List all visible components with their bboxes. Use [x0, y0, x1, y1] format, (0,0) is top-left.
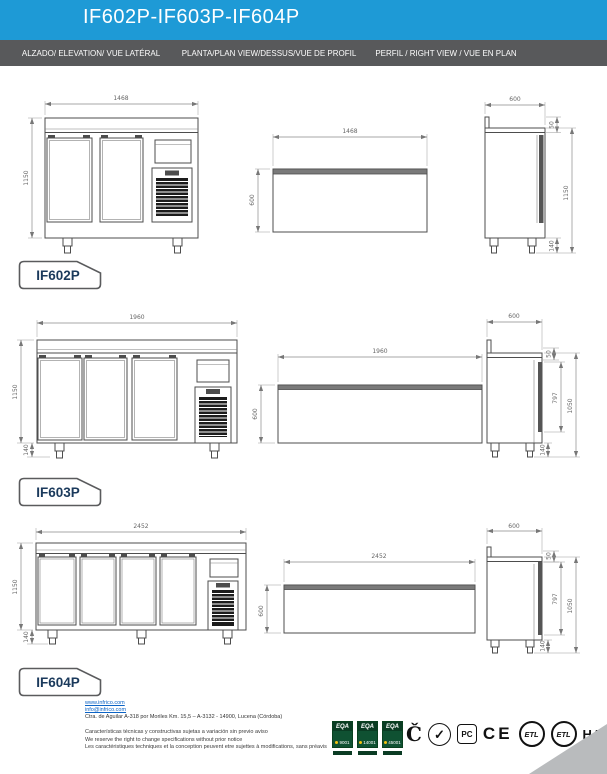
pct-mark-icon: PC	[457, 724, 477, 744]
dimension-splash: 50	[543, 551, 559, 562]
svg-text:1050: 1050	[567, 398, 574, 413]
datasheet-page: IF602P-IF603P-IF604P ALZADO/ ELEVATION/ …	[0, 0, 607, 774]
email-link[interactable]: info@infrico.com	[85, 707, 385, 714]
model-label-if602p: IF602P	[18, 260, 102, 290]
cabinet-body	[487, 340, 543, 443]
company-address: Ctra. de Aguilar A-318 por Moriles Km. 1…	[85, 714, 385, 721]
svg-text:1150: 1150	[563, 185, 570, 200]
door	[160, 554, 196, 625]
svg-text:IF604P: IF604P	[36, 675, 80, 690]
dimension-depth: 600	[485, 96, 545, 125]
column-label-side: PERFIL / RIGHT VIEW / VUE EN PLAN	[376, 40, 516, 66]
model-label-if604p: IF604P	[18, 667, 102, 697]
compressor-logo	[165, 171, 179, 176]
dimension-width: 1468	[273, 128, 427, 166]
svg-text:140: 140	[549, 240, 556, 252]
legs	[491, 443, 534, 457]
svg-text:1150: 1150	[12, 384, 19, 399]
if602p-plan-view: 1468 600	[245, 115, 445, 240]
dimension-legs: 140	[540, 640, 553, 653]
door-edge	[539, 135, 544, 223]
door	[80, 554, 116, 625]
quality-mark-icon: Č	[406, 724, 422, 744]
cabinet-body	[485, 117, 545, 238]
ce-mark: CE	[483, 724, 513, 744]
svg-text:1960: 1960	[129, 314, 144, 321]
dimension-splash: 50	[546, 117, 561, 133]
svg-text:50: 50	[546, 350, 553, 358]
star-icon	[384, 741, 387, 744]
dimension-width: 1468	[45, 95, 198, 115]
backsplash	[485, 117, 489, 128]
compressor-compartment	[152, 140, 192, 222]
door	[47, 135, 92, 222]
dimension-legs: 140	[546, 238, 561, 253]
dimension-door: 797	[544, 562, 565, 635]
iso-45001-badge: EQA 45001	[382, 721, 403, 748]
svg-text:1150: 1150	[23, 170, 30, 185]
svg-text:797: 797	[552, 593, 559, 605]
dimension-legs: 140	[23, 630, 48, 644]
dimension-splash: 50	[543, 348, 559, 360]
column-label-elevation: ALZADO/ ELEVATION/ VUE LATÉRAL	[22, 40, 160, 66]
dimension-height: 1150	[12, 543, 33, 630]
iso-14001-badge: EQA 14001	[357, 721, 378, 748]
worktop-outline	[278, 385, 482, 443]
cabinet-body	[487, 547, 543, 640]
gost-check-icon: ✓	[428, 723, 451, 746]
page-title: IF602P-IF603P-IF604P	[83, 6, 300, 29]
dimension-width: 1960	[37, 314, 237, 337]
dimension-depth: 600	[487, 313, 542, 350]
legs	[63, 238, 182, 253]
door	[132, 355, 177, 440]
header-bar: IF602P-IF603P-IF604P	[0, 0, 607, 40]
svg-text:1468: 1468	[342, 128, 357, 135]
svg-text:IF603P: IF603P	[36, 485, 80, 500]
backsplash	[487, 340, 491, 353]
compressor-compartment	[195, 360, 231, 443]
svg-text:2452: 2452	[371, 553, 386, 560]
svg-text:140: 140	[540, 640, 547, 652]
dimension-depth: 600	[249, 169, 270, 232]
svg-text:IF602P: IF602P	[36, 268, 80, 283]
svg-text:600: 600	[258, 605, 265, 617]
dimension-depth: 600	[252, 385, 275, 443]
compressor-grille	[156, 178, 188, 216]
star-icon	[359, 741, 362, 744]
svg-text:1468: 1468	[113, 95, 128, 102]
svg-text:600: 600	[508, 523, 520, 530]
svg-text:50: 50	[546, 552, 553, 560]
svg-text:140: 140	[540, 444, 547, 456]
worktop-outline	[284, 585, 475, 633]
dimension-height: 1150	[12, 340, 34, 443]
compressor-logo	[216, 583, 230, 588]
door	[38, 554, 76, 625]
legs	[491, 640, 534, 653]
door	[100, 135, 143, 222]
model-label-if603p: IF603P	[18, 477, 102, 507]
page-corner-triangle	[529, 724, 607, 774]
backsplash	[487, 547, 491, 557]
compressor-grille	[199, 397, 227, 437]
dimension-depth: 600	[258, 585, 281, 633]
dimension-width: 1960	[278, 348, 482, 382]
column-label-plan: PLANTA/PLAN VIEW/DESSUS/VUE DE PROFIL	[183, 40, 355, 66]
door	[120, 554, 156, 625]
svg-text:600: 600	[508, 313, 520, 320]
door-edge	[538, 562, 543, 635]
iso-9001-badge: EQA 9001	[332, 721, 353, 748]
svg-text:600: 600	[252, 408, 259, 420]
if604p-side-view: 600 50 797 1050	[460, 520, 607, 715]
worktop-outline	[273, 169, 427, 232]
dimension-height: 1150	[23, 118, 42, 238]
svg-text:140: 140	[23, 631, 30, 643]
svg-text:140: 140	[23, 444, 30, 456]
if602p-front-elevation: 1468 1150	[20, 85, 230, 270]
if603p-plan-view: 1960 600	[245, 330, 495, 450]
dimension-width: 2452	[284, 553, 475, 582]
svg-text:50: 50	[549, 121, 556, 129]
svg-text:600: 600	[249, 194, 256, 206]
legs	[55, 443, 219, 458]
dimension-depth: 600	[487, 523, 542, 554]
view-column-bar: ALZADO/ ELEVATION/ VUE LATÉRAL PLANTA/PL…	[0, 40, 607, 66]
door	[38, 355, 82, 440]
door-edge	[538, 362, 543, 432]
website-link[interactable]: www.infrico.com	[85, 700, 385, 707]
if603p-side-view: 600 50 797 1050	[460, 305, 607, 490]
svg-text:797: 797	[552, 392, 559, 404]
svg-text:600: 600	[509, 96, 521, 103]
svg-text:1050: 1050	[567, 598, 574, 613]
dimension-door: 797	[544, 362, 565, 432]
dimension-legs: 140	[540, 443, 553, 457]
dimension-width: 2452	[36, 523, 246, 540]
legs	[48, 630, 232, 644]
if603p-front-elevation: 1960 1150 140	[10, 305, 260, 485]
legs	[490, 238, 536, 253]
dimension-legs: 140	[23, 443, 50, 457]
if604p-plan-view: 2452 600	[245, 545, 495, 660]
svg-text:1150: 1150	[12, 579, 19, 594]
svg-text:2452: 2452	[133, 523, 148, 530]
door	[84, 355, 127, 440]
svg-text:1960: 1960	[372, 348, 387, 355]
iso-certification-badges: EQA 9001 EQA 14001 EQA 45001	[332, 721, 403, 748]
compressor-compartment	[208, 559, 238, 630]
compressor-logo	[206, 389, 220, 394]
if602p-side-view: 600 50 1150 140	[460, 85, 607, 280]
